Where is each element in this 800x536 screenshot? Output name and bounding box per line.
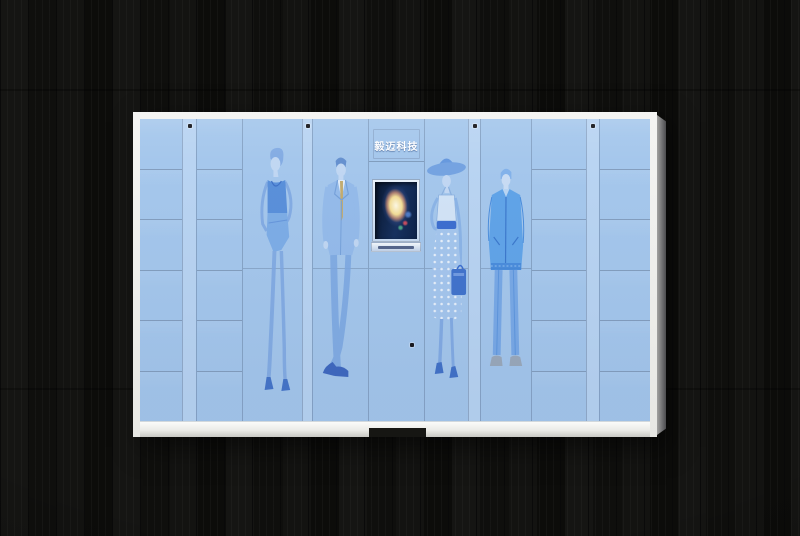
locker-door: [600, 321, 650, 372]
cell-column-left: [196, 119, 242, 421]
fashion-sketch-man-jacket: [481, 119, 531, 421]
cabinet-front-frame: 毅迈科技: [133, 112, 657, 437]
cell-column-far-right: [599, 119, 650, 421]
cell-column-right: [531, 119, 586, 421]
brand-logo-panel: 毅迈科技: [369, 119, 424, 162]
product-photo: 毅迈科技: [0, 0, 800, 536]
locker-door: [140, 271, 182, 322]
locker-door: [140, 372, 182, 422]
panel-woman-standing: [242, 119, 302, 421]
door-grid: 毅迈科技: [140, 119, 650, 421]
lock-icon: [188, 124, 192, 128]
locker-door: [197, 170, 242, 221]
locker-door: [600, 372, 650, 422]
hinge-strip-3: [468, 119, 480, 421]
keypad-tray: [371, 242, 421, 252]
fashion-sketch-woman-hat: [425, 119, 468, 421]
locker-door: [532, 271, 586, 322]
cabinet-side-panel: [657, 115, 666, 435]
locker-door: [600, 119, 650, 170]
screen-display: [379, 183, 416, 237]
panel-seam: [369, 268, 424, 269]
locker-door: [532, 220, 586, 271]
locker-door: [532, 119, 586, 170]
cell-column-far-left: [140, 119, 182, 421]
console-column: 毅迈科技: [368, 119, 424, 421]
lock-icon: [306, 124, 310, 128]
locker-door: [532, 170, 586, 221]
parcel-locker-cabinet: 毅迈科技: [133, 112, 657, 437]
base-notch: [369, 428, 426, 437]
locker-door: [600, 271, 650, 322]
console-screen: [372, 179, 420, 242]
locker-door: [140, 170, 182, 221]
locker-door: [197, 321, 242, 372]
locker-door: [140, 119, 182, 170]
panel-man-jacket: [480, 119, 531, 421]
lock-icon: [473, 124, 477, 128]
lock-icon: [591, 124, 595, 128]
hinge-strip-1: [182, 119, 196, 421]
fashion-sketch-man-suit: [313, 119, 368, 421]
panel-woman-hat: [424, 119, 468, 421]
card-slot: [378, 246, 414, 249]
brand-logo-text: 毅迈科技: [375, 143, 419, 153]
locker-door: [532, 321, 586, 372]
locker-door: [140, 220, 182, 271]
locker-door: [197, 119, 242, 170]
cabinet-base: [140, 421, 650, 437]
locker-door: [140, 321, 182, 372]
hinge-strip-4: [586, 119, 599, 421]
panel-man-suit: [312, 119, 368, 421]
locker-door: [600, 170, 650, 221]
locker-door: [600, 220, 650, 271]
lock-icon: [410, 343, 414, 347]
locker-door: [197, 372, 242, 422]
locker-door: [197, 220, 242, 271]
locker-door: [197, 271, 242, 322]
hinge-strip-2: [302, 119, 312, 421]
screen-bezel: [375, 182, 417, 239]
fashion-sketch-woman-standing: [243, 119, 302, 421]
locker-door: [532, 372, 586, 422]
